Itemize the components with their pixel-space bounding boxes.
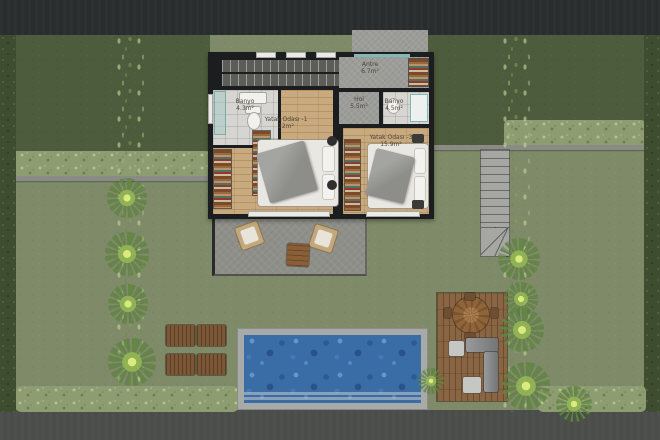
internal-staircase xyxy=(222,60,340,86)
boundary-hedge-right xyxy=(644,35,660,412)
outdoor-sofa-top xyxy=(466,338,498,352)
room-area: 6.7m² xyxy=(348,68,392,75)
hedge-row-bottom-left xyxy=(16,386,238,412)
room-name: Banyo xyxy=(385,98,404,105)
outdoor-dining-table xyxy=(453,297,489,333)
room-area: 5.5m² xyxy=(339,103,379,110)
room-name: Yatak Odası -3 xyxy=(370,134,413,141)
pillow xyxy=(414,148,426,174)
deck-chair xyxy=(444,308,451,318)
palm-tree xyxy=(498,238,540,280)
bedroom-1-wardrobe xyxy=(214,150,231,208)
bedroom-3-wardrobe xyxy=(345,140,360,210)
window xyxy=(316,52,336,58)
room-name: Yatak Odası -1 xyxy=(265,116,308,123)
duvet xyxy=(256,140,318,204)
swimming-pool xyxy=(244,335,421,403)
sun-lounger xyxy=(166,325,195,346)
road-top xyxy=(0,0,660,35)
hedge-row-left xyxy=(0,151,212,177)
room-area: 4.5m² xyxy=(374,105,414,112)
room-name: Antre xyxy=(362,61,378,68)
garden-wall-left xyxy=(0,176,212,181)
room-name: Banyo xyxy=(236,98,255,105)
stair-handrail xyxy=(222,72,340,74)
outdoor-side-table xyxy=(449,341,464,356)
house-floor-plan: Banyo 4.3m² Yatak Odası -1 22m² Antre 6.… xyxy=(208,52,434,219)
sun-lounger xyxy=(166,354,195,375)
entry-glass-door xyxy=(354,54,410,57)
deck-chair xyxy=(491,308,498,318)
room-label-yatak-3: Yatak Odası -3 15.9m² xyxy=(358,134,424,148)
boundary-hedge-left xyxy=(0,35,16,412)
wicker-chair xyxy=(308,223,340,255)
window xyxy=(208,94,213,124)
room-area: 22m² xyxy=(253,123,319,130)
pillow xyxy=(414,176,426,202)
sun-lounger xyxy=(197,325,226,346)
bed xyxy=(258,140,338,206)
room-label-yatak-1: Yatak Odası -1 22m² xyxy=(253,116,319,130)
hedge-row-bottom-right xyxy=(538,386,646,412)
window xyxy=(286,52,306,58)
outdoor-sofa-right xyxy=(484,352,498,392)
pool-step xyxy=(244,397,421,400)
window xyxy=(366,211,420,217)
window xyxy=(248,211,330,217)
palm-tree xyxy=(418,368,444,394)
garden-wall-right xyxy=(428,145,660,150)
room-name: Hol xyxy=(354,96,364,103)
room-label-hol: Hol 5.5m² xyxy=(339,96,379,110)
room-area: 15.9m² xyxy=(358,141,424,148)
palm-tree xyxy=(105,232,149,276)
nightstand xyxy=(327,180,337,190)
chair-cushion xyxy=(240,226,259,245)
wicker-chair xyxy=(233,219,265,251)
villa-site-plan: Teras 21 m² xyxy=(0,0,660,440)
pillow xyxy=(322,146,335,172)
room-area: 4.3m² xyxy=(220,105,270,112)
pool-deck-border xyxy=(237,328,428,410)
room-label-antre: Antre 6.7m² xyxy=(348,61,392,75)
palm-tree xyxy=(107,178,147,218)
bed xyxy=(368,144,428,208)
sun-lounger xyxy=(197,354,226,375)
antre-wardrobe xyxy=(409,59,428,86)
terrace: Teras 21 m² xyxy=(212,219,367,276)
deck-chair xyxy=(465,293,475,300)
room-label-banyo-1: Banyo 4.3m² xyxy=(220,98,270,112)
window xyxy=(256,52,276,58)
palm-tree xyxy=(556,386,592,422)
pool-step xyxy=(244,392,421,395)
chair-cushion xyxy=(314,229,333,248)
nightstand xyxy=(327,136,337,146)
entry-path xyxy=(352,30,428,52)
duvet xyxy=(365,148,415,204)
outdoor-ottoman xyxy=(463,377,481,393)
palm-tree xyxy=(108,338,156,386)
palm-tree xyxy=(500,308,544,352)
nightstand xyxy=(412,200,424,209)
terrace-coffee-table xyxy=(286,243,309,266)
palm-tree xyxy=(502,362,550,410)
palm-tree xyxy=(108,284,148,324)
wooden-deck xyxy=(437,293,507,401)
room-label-banyo-2: Banyo 4.5m² xyxy=(374,98,414,112)
garden-staircase xyxy=(480,149,510,229)
